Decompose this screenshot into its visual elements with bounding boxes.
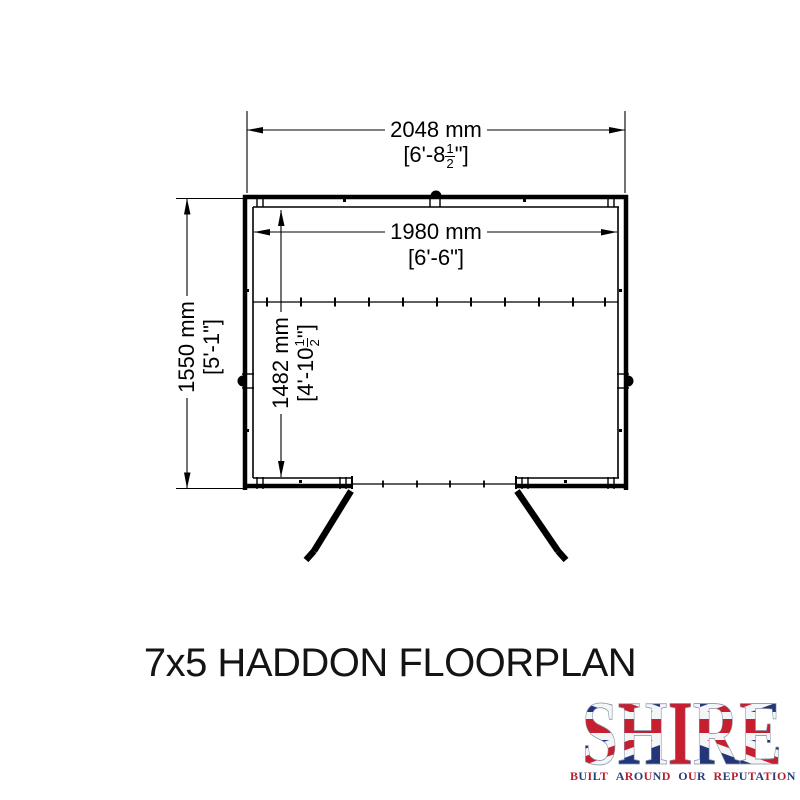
door-leaf-left xyxy=(306,491,351,560)
page-title: 7x5 HADDON FLOORPLAN xyxy=(90,638,690,688)
dim-internal-depth-label: 1482 mm [4'-1012"] xyxy=(268,303,318,423)
dim-overall-depth-label: 1550 mm [5'-1"] xyxy=(174,287,224,407)
dim-overall-depth-imperial: [5'-1"] xyxy=(199,314,224,380)
door-threshold-line xyxy=(352,481,516,488)
floorplan-drawing xyxy=(0,0,800,620)
door-leaves xyxy=(306,491,566,560)
door-leaf-right xyxy=(517,491,566,560)
dim-internal-width-mm: 1980 mm xyxy=(346,219,526,244)
shire-logo: SHIRE xyxy=(560,686,800,774)
joint-bump-right xyxy=(628,376,634,387)
fraction: 12 xyxy=(293,338,322,347)
shire-logo-tagline: BUILT AROUND OUR REPUTATION xyxy=(570,769,792,783)
joint-bump-top xyxy=(431,191,442,197)
dim-internal-depth-imperial: [4'-1012"] xyxy=(293,319,318,407)
dim-internal-depth-mm: 1482 mm xyxy=(268,312,293,414)
joint-bump-left xyxy=(238,376,243,387)
dim-internal-width-imperial: [6'-6"] xyxy=(346,245,526,270)
fraction: 12 xyxy=(445,142,454,171)
dim-overall-width-imperial: [6'-812"] xyxy=(346,142,526,171)
shire-logo-wordmark: SHIRE xyxy=(582,686,782,774)
dim-overall-depth-mm: 1550 mm xyxy=(174,296,199,398)
dim-overall-width-mm: 2048 mm xyxy=(346,117,526,142)
